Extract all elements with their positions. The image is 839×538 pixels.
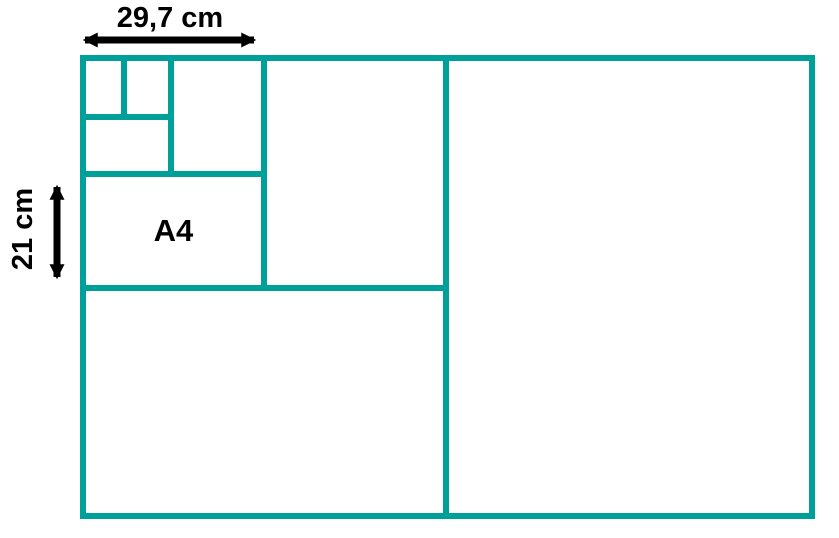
a4-region-label: A4: [113, 211, 234, 251]
paper-size-diagram: 29,7 cm 21 cm A4: [0, 0, 839, 538]
width-dimension-label: 29,7 cm: [80, 2, 260, 34]
height-dimension-label: 21 cm: [7, 169, 39, 289]
diagram-canvas: [0, 0, 839, 538]
